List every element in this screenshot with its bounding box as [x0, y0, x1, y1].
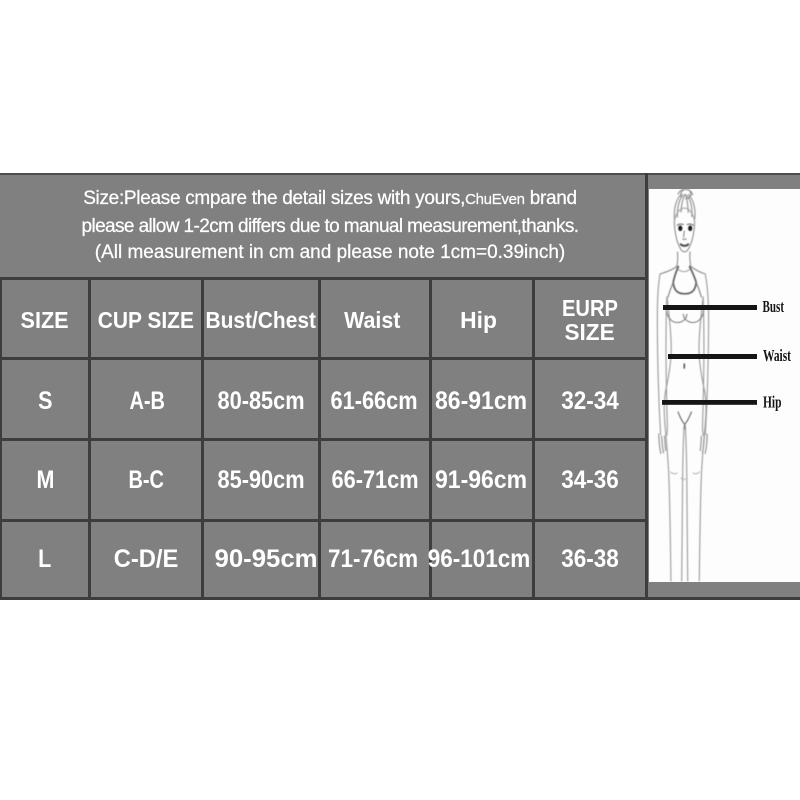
- svg-text:Hip: Hip: [763, 393, 782, 412]
- svg-text:Bust: Bust: [763, 297, 785, 316]
- svg-text:Waist: Waist: [763, 346, 791, 365]
